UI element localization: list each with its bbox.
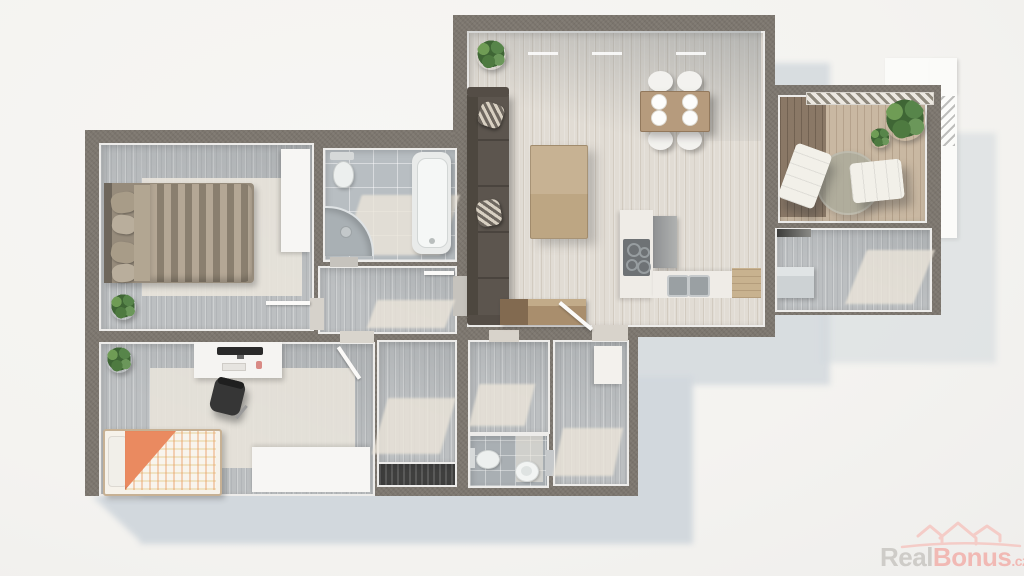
dark-doormat	[777, 229, 811, 237]
kitchen-double-sink	[667, 275, 707, 294]
keyboard	[222, 363, 246, 371]
dining-chair	[677, 71, 702, 92]
monitor-stand	[237, 355, 244, 359]
window-light-mark	[592, 52, 622, 55]
wardrobe	[281, 149, 310, 252]
gray-storage-box	[777, 267, 814, 298]
sink-basin	[688, 275, 710, 297]
open-door-leaf	[424, 271, 454, 275]
wardrobe	[252, 447, 370, 492]
shadow-wedge	[92, 496, 142, 543]
potted-plant	[106, 347, 132, 373]
sofa-armrest	[467, 87, 509, 97]
toilet	[470, 448, 475, 468]
plate	[682, 110, 698, 126]
single-bed	[103, 429, 222, 496]
bathtub-basin	[417, 158, 448, 248]
desk	[194, 342, 282, 378]
shower-drain	[340, 226, 352, 238]
double-bed	[104, 183, 254, 283]
round-sink	[515, 461, 539, 482]
watermark-tld: .cz	[1011, 553, 1024, 569]
plate	[682, 94, 698, 110]
room-stair-shaft	[377, 462, 457, 487]
toilet-bowl	[333, 161, 354, 188]
dining-table	[640, 91, 710, 132]
kitchen-tall-cabinet	[653, 216, 677, 268]
striped-pillow	[475, 198, 503, 228]
plate	[651, 94, 667, 110]
door-opening	[330, 257, 358, 267]
dining-chair	[648, 129, 673, 150]
dining-chair	[677, 129, 702, 150]
bench-left-part	[500, 299, 528, 325]
floor-shade-overlay	[467, 31, 761, 141]
sink-basin	[667, 275, 689, 297]
plate	[651, 110, 667, 126]
floorplan-scene: RealBonus.cz	[0, 0, 1024, 576]
sink-bowl	[521, 466, 532, 476]
plant-offshoot	[870, 128, 890, 148]
toilet	[330, 152, 354, 160]
floor-light-patch	[553, 428, 623, 476]
cooktop	[623, 239, 650, 276]
potted-plant	[476, 40, 506, 70]
desk-accessory	[256, 361, 262, 369]
bed-sheet	[134, 185, 150, 281]
watermark-text: RealBonus.cz	[880, 542, 1020, 573]
box-top	[777, 267, 814, 276]
kitchen-wood-cabinet	[732, 268, 761, 298]
toilet-bowl	[476, 450, 500, 469]
burner	[637, 260, 651, 274]
watermark: RealBonus.cz	[880, 520, 1020, 572]
watermark-brand-gray: Real	[880, 542, 933, 572]
window-light-mark	[676, 52, 706, 55]
floor-light-patch	[469, 384, 535, 426]
bed-pillow	[111, 263, 137, 283]
door-opening	[340, 331, 374, 343]
watermark-brand-accent: Bonus	[933, 542, 1011, 572]
bench-top-strip	[528, 299, 586, 306]
corner-sofa	[467, 87, 509, 325]
door-opening	[489, 330, 519, 342]
dining-chair	[648, 71, 673, 92]
floor-light-patch	[367, 300, 455, 328]
door-opening	[310, 298, 324, 330]
burner	[639, 247, 650, 258]
coffee-table	[530, 145, 588, 239]
corridor-white-cabinet	[594, 346, 622, 384]
window-light-mark	[528, 52, 558, 55]
bed-duvet-striped	[150, 184, 252, 282]
monitor	[217, 347, 263, 355]
potted-plant	[110, 294, 136, 320]
door-opening	[592, 325, 628, 341]
open-door-leaf	[266, 301, 310, 305]
bathtub-drain	[429, 238, 435, 244]
lounge-chair	[849, 158, 905, 203]
large-plant	[884, 99, 926, 141]
